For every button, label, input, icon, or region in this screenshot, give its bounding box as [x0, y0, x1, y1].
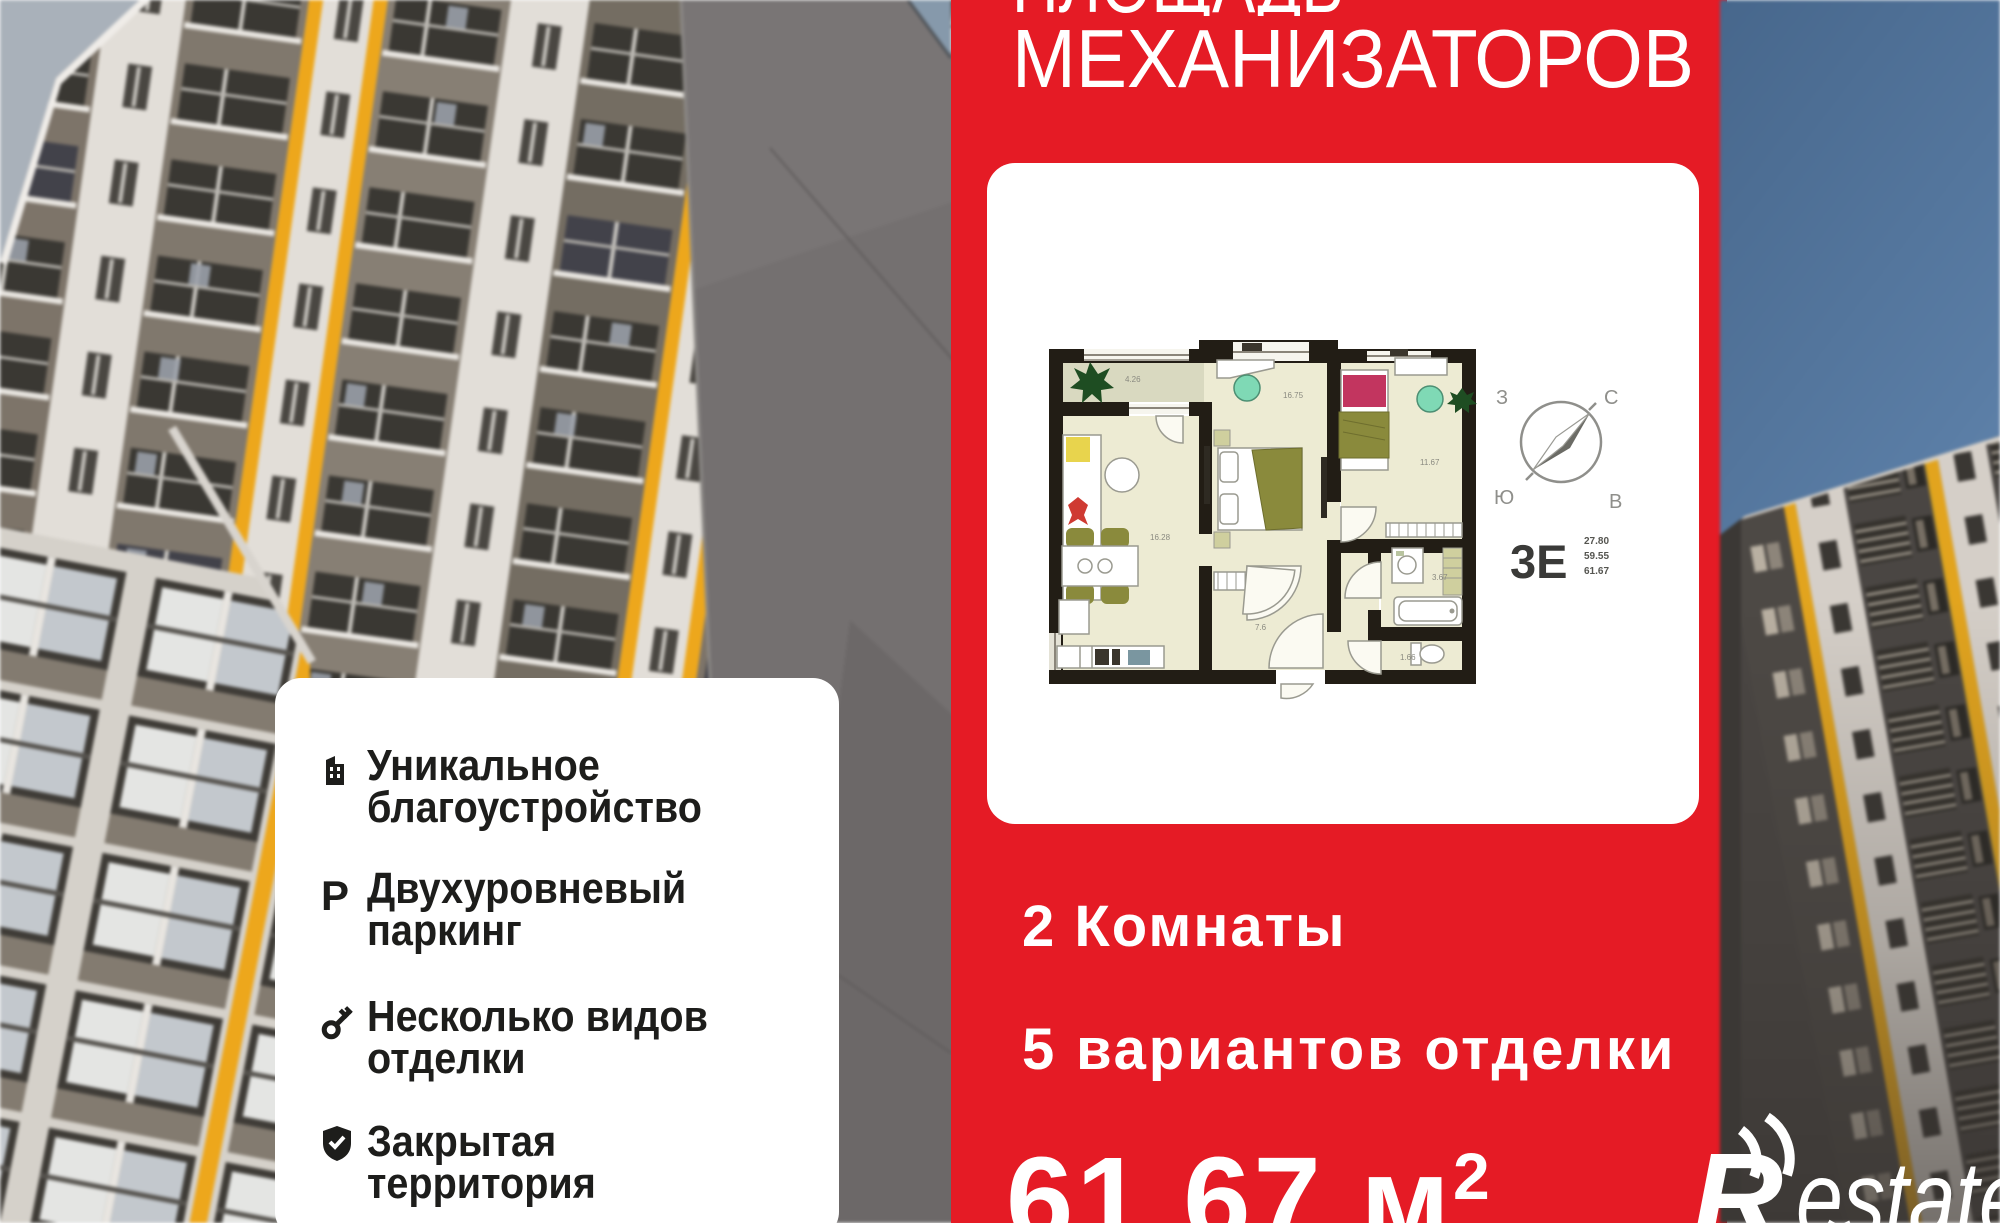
svg-text:3Е: 3Е	[1510, 535, 1568, 588]
svg-text:1.66: 1.66	[1400, 653, 1416, 662]
svg-text:В: В	[1609, 491, 1622, 513]
svg-text:11.67: 11.67	[1420, 458, 1440, 467]
svg-text:4.26: 4.26	[1125, 375, 1141, 384]
svg-text:R: R	[1692, 1127, 1783, 1223]
svg-text:3.67: 3.67	[1432, 573, 1448, 582]
svg-text:27.80: 27.80	[1584, 536, 1609, 547]
svg-text:16.75: 16.75	[1283, 391, 1304, 400]
svg-text:7.6: 7.6	[1255, 623, 1267, 632]
svg-text:61.67: 61.67	[1584, 566, 1609, 577]
svg-text:16.28: 16.28	[1150, 533, 1171, 542]
svg-text:Ю: Ю	[1494, 487, 1514, 509]
svg-text:59.55: 59.55	[1584, 551, 1609, 562]
svg-text:З: З	[1496, 387, 1508, 409]
svg-text:С: С	[1604, 387, 1618, 409]
svg-text:estate: estate	[1796, 1140, 2000, 1223]
